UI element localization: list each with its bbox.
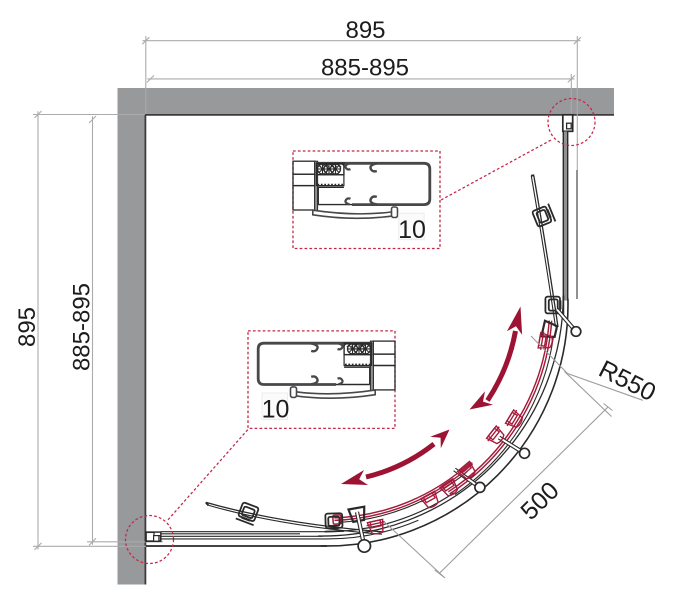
svg-text:500: 500: [515, 476, 564, 525]
svg-text:885-895: 885-895: [69, 283, 96, 371]
svg-text:895: 895: [345, 17, 385, 44]
svg-text:10: 10: [398, 216, 426, 244]
svg-text:895: 895: [14, 307, 41, 347]
svg-text:R550: R550: [594, 355, 660, 407]
svg-text:10: 10: [262, 396, 290, 424]
svg-text:885-895: 885-895: [321, 55, 409, 82]
